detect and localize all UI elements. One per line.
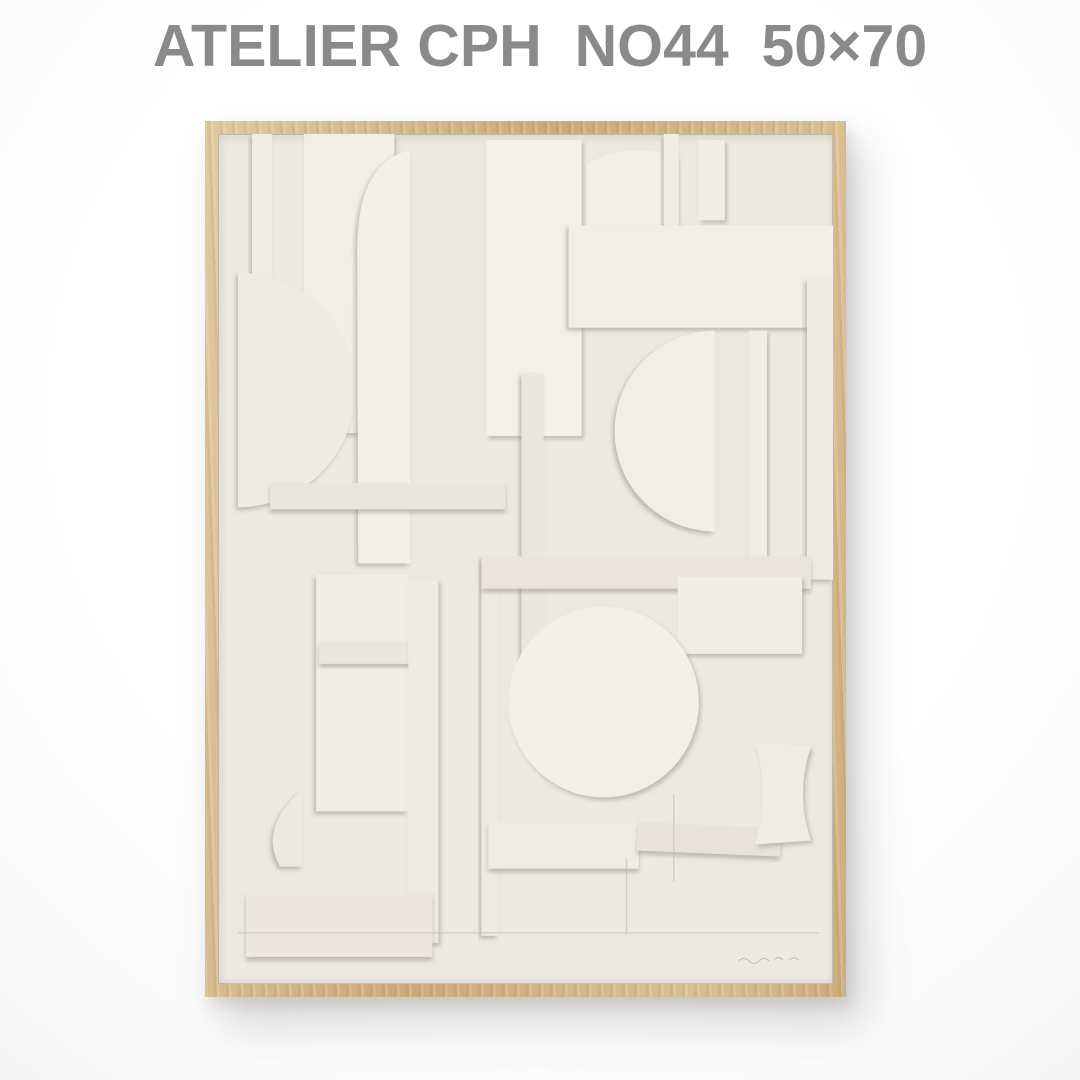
- relief-piece: [615, 331, 715, 532]
- paper-relief-pieces: [238, 134, 833, 957]
- relief-piece: [270, 483, 505, 509]
- relief-piece: [481, 556, 498, 935]
- product-photo: ATELIER CPH NO44 50×70: [0, 0, 1080, 1080]
- relief-piece: [569, 225, 833, 327]
- relief-piece: [273, 789, 302, 866]
- relief-piece: [699, 140, 725, 220]
- relief-piece: [755, 742, 811, 844]
- relief-piece: [488, 822, 638, 868]
- relief-piece: [587, 150, 677, 235]
- relief-piece: [408, 580, 438, 943]
- relief-piece: [678, 577, 802, 654]
- relief-piece: [319, 642, 421, 664]
- relief-piece: [521, 373, 543, 674]
- page-title: ATELIER CPH NO44 50×70: [0, 12, 1080, 80]
- relief-piece: [749, 331, 767, 562]
- relief-piece: [508, 607, 698, 798]
- poster-frame: [205, 121, 846, 997]
- relief-piece: [316, 575, 408, 812]
- artwork-svg: [218, 134, 833, 984]
- artist-signature: [739, 958, 799, 964]
- artwork-canvas: [218, 134, 833, 984]
- relief-piece: [246, 893, 432, 957]
- relief-piece: [807, 279, 833, 580]
